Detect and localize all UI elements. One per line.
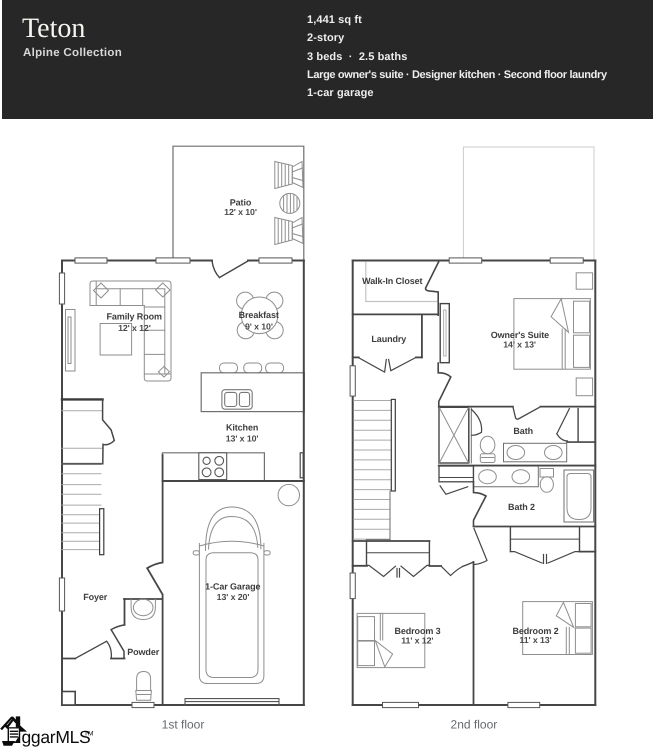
svg-text:Laundry: Laundry	[371, 334, 406, 344]
svg-text:12' x 10': 12' x 10'	[224, 207, 257, 217]
svg-text:2nd floor: 2nd floor	[451, 717, 498, 731]
svg-text:ggarMLS: ggarMLS	[22, 727, 91, 747]
svg-text:1st floor: 1st floor	[162, 717, 205, 731]
svg-text:Bath 2: Bath 2	[508, 502, 535, 512]
svg-text:13' x 20': 13' x 20'	[217, 592, 250, 602]
svg-text:TM: TM	[84, 731, 93, 738]
svg-text:11' x 12': 11' x 12'	[401, 636, 433, 646]
svg-text:11' x 13': 11' x 13'	[519, 635, 551, 645]
svg-text:14' x 13': 14' x 13'	[503, 340, 536, 350]
svg-text:1-Car Garage: 1-Car Garage	[205, 582, 260, 592]
svg-text:Bath: Bath	[513, 426, 533, 436]
svg-text:Kitchen: Kitchen	[226, 423, 258, 433]
svg-text:Patio: Patio	[230, 197, 252, 207]
svg-text:13' x 10': 13' x 10'	[226, 434, 259, 444]
svg-text:Breakfast: Breakfast	[239, 310, 279, 320]
svg-text:12' x 12': 12' x 12'	[118, 323, 151, 333]
svg-text:Foyer: Foyer	[83, 592, 108, 602]
svg-text:Owner's Suite: Owner's Suite	[491, 330, 549, 340]
svg-text:Walk-In Closet: Walk-In Closet	[362, 276, 422, 286]
svg-text:9' x 10': 9' x 10'	[245, 322, 273, 332]
svg-text:Family Room: Family Room	[106, 311, 162, 321]
svg-text:Powder: Powder	[127, 647, 160, 657]
